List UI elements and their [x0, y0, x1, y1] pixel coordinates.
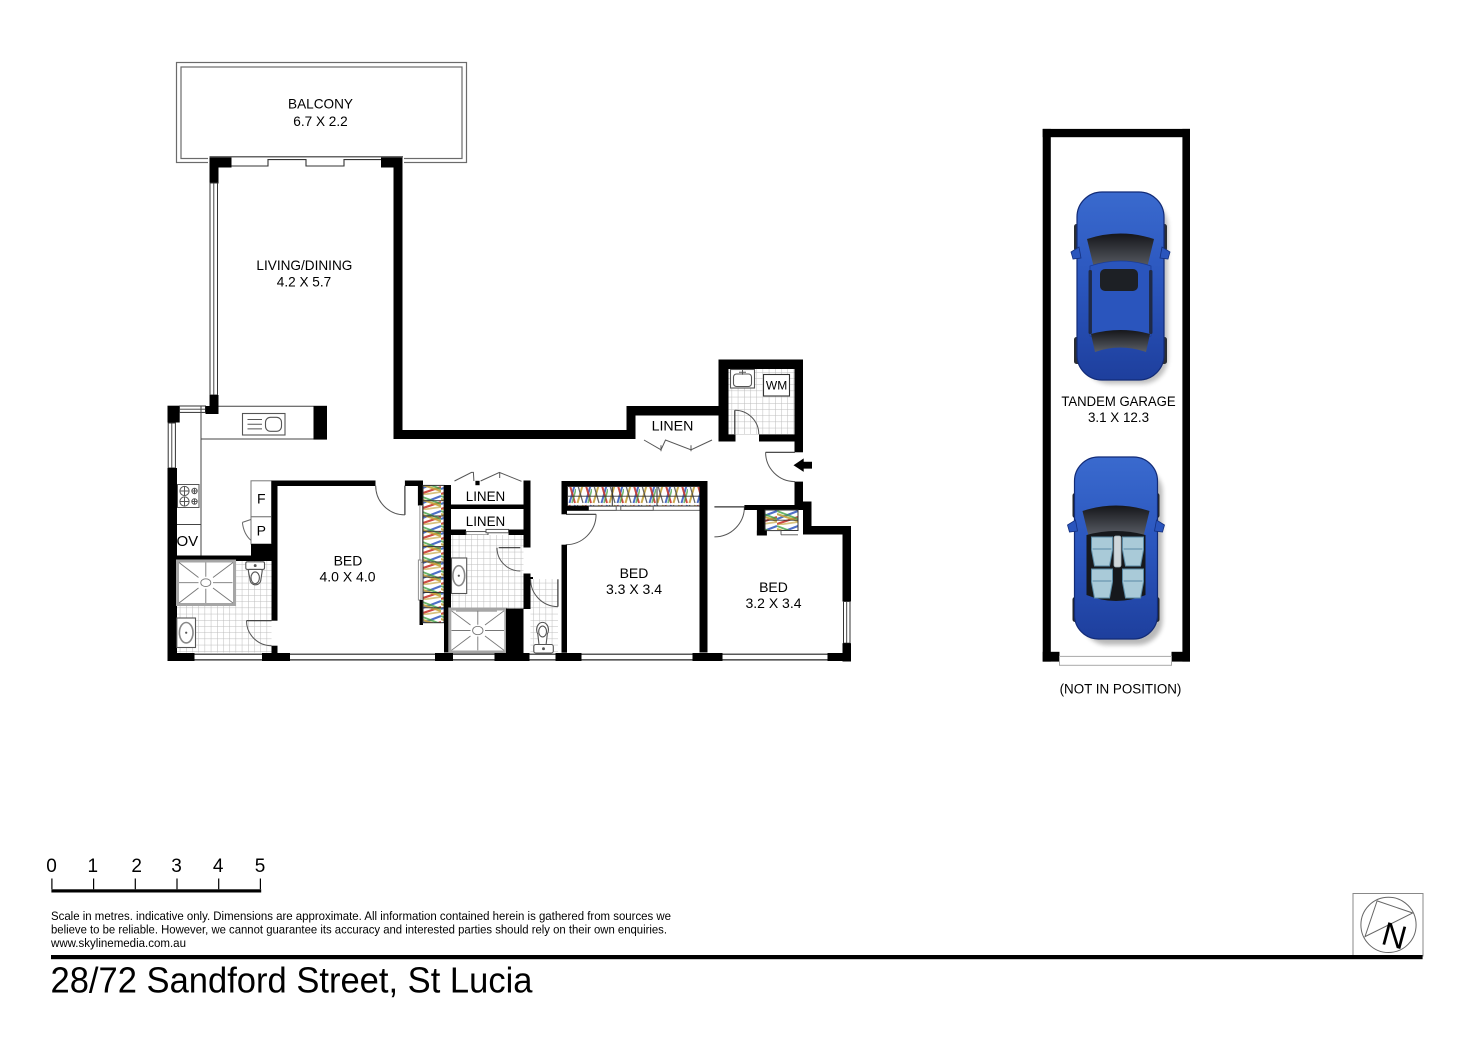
svg-text:6.7 X 2.2: 6.7 X 2.2 [293, 114, 347, 129]
svg-text:BALCONY: BALCONY [288, 97, 353, 112]
svg-text:3.3 X 3.4: 3.3 X 3.4 [606, 581, 662, 597]
svg-text:TANDEM GARAGE: TANDEM GARAGE [1061, 394, 1175, 409]
svg-text:0: 0 [46, 856, 57, 877]
svg-text:4.2 X 5.7: 4.2 X 5.7 [277, 274, 331, 289]
svg-text:(NOT IN POSITION): (NOT IN POSITION) [1060, 682, 1182, 697]
svg-text:3: 3 [171, 856, 182, 877]
svg-text:LIVING/DINING: LIVING/DINING [256, 258, 352, 273]
svg-text:LINEN: LINEN [652, 419, 694, 435]
svg-text:BED: BED [334, 553, 363, 569]
svg-text:Scale in metres. indicative on: Scale in metres. indicative only. Dimens… [51, 909, 671, 923]
svg-text:P: P [257, 523, 266, 539]
svg-text:F: F [257, 491, 266, 507]
svg-text:believe to be reliable. Howeve: believe to be reliable. However, we cann… [51, 923, 667, 937]
svg-text:www.skylinemedia.com.au: www.skylinemedia.com.au [50, 936, 186, 950]
svg-text:3.1 X 12.3: 3.1 X 12.3 [1088, 410, 1149, 425]
svg-text:LINEN: LINEN [466, 514, 505, 529]
svg-text:3.2 X 3.4: 3.2 X 3.4 [745, 595, 801, 611]
svg-text:LINEN: LINEN [466, 489, 505, 504]
svg-text:4: 4 [213, 856, 224, 877]
svg-text:WM: WM [766, 379, 787, 393]
svg-text:5: 5 [255, 856, 266, 877]
svg-text:1: 1 [88, 856, 99, 877]
svg-text:BED: BED [620, 565, 649, 581]
svg-text:4.0 X 4.0: 4.0 X 4.0 [319, 568, 375, 584]
svg-text:2: 2 [131, 856, 142, 877]
svg-text:BED: BED [759, 579, 788, 595]
svg-text:OV: OV [176, 533, 198, 550]
svg-text:28/72 Sandford Street, St Luci: 28/72 Sandford Street, St Lucia [51, 960, 534, 1001]
